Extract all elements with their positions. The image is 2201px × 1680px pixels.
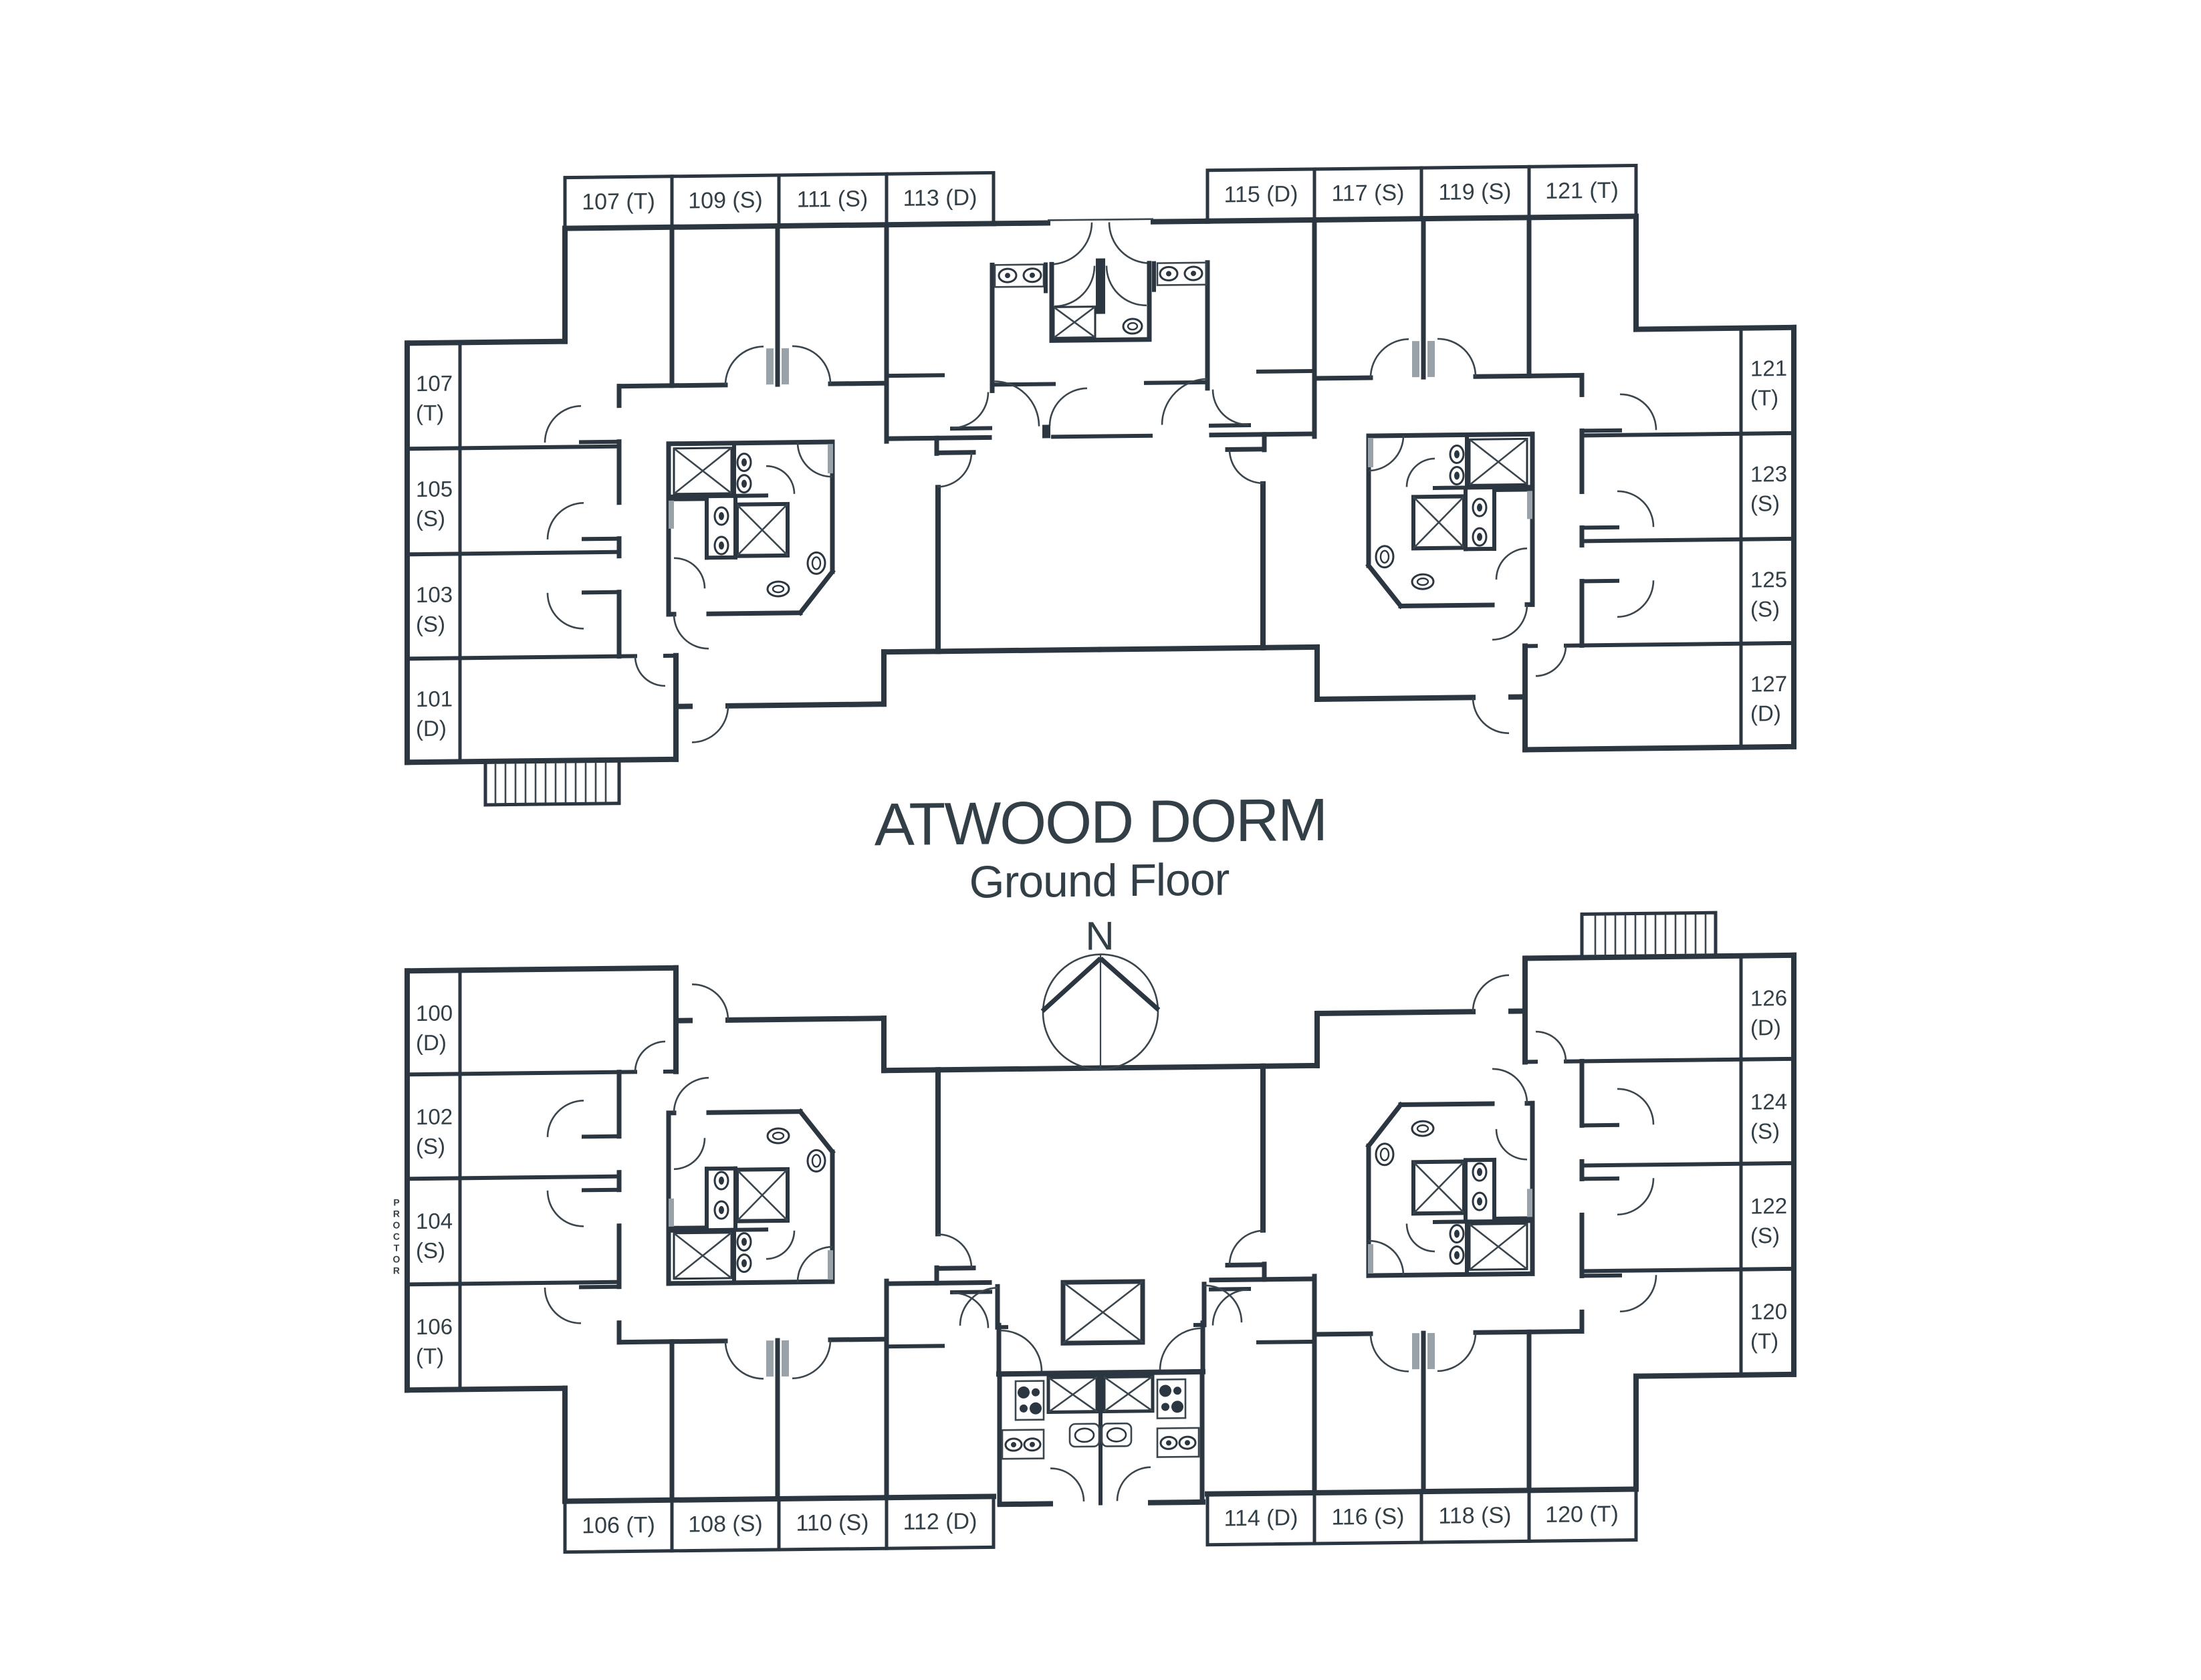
svg-text:(S): (S): [1750, 596, 1780, 621]
svg-text:102: 102: [416, 1104, 453, 1130]
svg-text:(S): (S): [416, 612, 445, 636]
svg-text:(T): (T): [416, 400, 444, 425]
svg-text:T: T: [394, 1242, 400, 1253]
svg-text:105: 105: [416, 477, 453, 502]
svg-text:(D): (D): [416, 1030, 447, 1056]
svg-text:O: O: [393, 1219, 400, 1230]
svg-text:N: N: [1085, 913, 1114, 958]
svg-text:108 (S): 108 (S): [688, 1511, 762, 1537]
svg-text:(D): (D): [1750, 1015, 1781, 1040]
svg-text:107: 107: [416, 371, 453, 396]
svg-text:111 (S): 111 (S): [797, 187, 868, 213]
svg-text:121: 121: [1750, 356, 1787, 381]
svg-text:112 (D): 112 (D): [903, 1509, 977, 1535]
svg-text:Ground Floor: Ground Floor: [969, 854, 1230, 907]
svg-text:104: 104: [416, 1209, 453, 1234]
svg-text:101: 101: [416, 687, 453, 712]
svg-text:C: C: [393, 1231, 400, 1241]
svg-text:121 (T): 121 (T): [1545, 178, 1619, 204]
svg-text:O: O: [393, 1253, 400, 1264]
svg-text:R: R: [393, 1208, 400, 1219]
svg-text:(S): (S): [1750, 491, 1780, 515]
svg-text:118 (S): 118 (S): [1439, 1503, 1512, 1529]
svg-text:(S): (S): [416, 1134, 445, 1159]
svg-text:R: R: [393, 1265, 400, 1276]
svg-text:127: 127: [1750, 671, 1787, 697]
svg-text:(T): (T): [416, 1344, 444, 1368]
svg-text:(D): (D): [1750, 701, 1781, 726]
svg-text:(S): (S): [1750, 1118, 1780, 1143]
svg-text:(S): (S): [1750, 1223, 1780, 1247]
svg-text:100: 100: [416, 1001, 453, 1026]
svg-text:120 (T): 120 (T): [1545, 1502, 1619, 1528]
svg-text:123: 123: [1750, 461, 1787, 487]
svg-text:103: 103: [416, 582, 453, 608]
svg-text:107 (T): 107 (T): [582, 189, 655, 215]
svg-text:106 (T): 106 (T): [582, 1512, 655, 1538]
svg-text:P: P: [393, 1197, 399, 1207]
svg-text:125: 125: [1750, 567, 1787, 592]
svg-text:ATWOOD DORM: ATWOOD DORM: [875, 787, 1326, 859]
svg-text:117 (S): 117 (S): [1332, 180, 1405, 206]
svg-text:(T): (T): [1750, 1328, 1778, 1353]
svg-text:106: 106: [416, 1314, 453, 1340]
svg-text:115 (D): 115 (D): [1224, 181, 1298, 207]
svg-text:109 (S): 109 (S): [688, 187, 762, 213]
svg-text:(D): (D): [416, 716, 447, 741]
svg-text:(S): (S): [416, 1238, 445, 1263]
svg-text:(S): (S): [416, 506, 445, 531]
svg-text:119 (S): 119 (S): [1439, 179, 1512, 205]
svg-text:126: 126: [1750, 985, 1787, 1011]
svg-text:110 (S): 110 (S): [796, 1510, 869, 1536]
svg-text:(T): (T): [1750, 385, 1778, 410]
svg-text:124: 124: [1750, 1089, 1787, 1114]
svg-text:122: 122: [1750, 1193, 1787, 1219]
svg-text:113 (D): 113 (D): [903, 185, 977, 211]
svg-text:114 (D): 114 (D): [1224, 1505, 1298, 1531]
svg-text:120: 120: [1750, 1299, 1787, 1324]
svg-text:116 (S): 116 (S): [1332, 1504, 1405, 1530]
